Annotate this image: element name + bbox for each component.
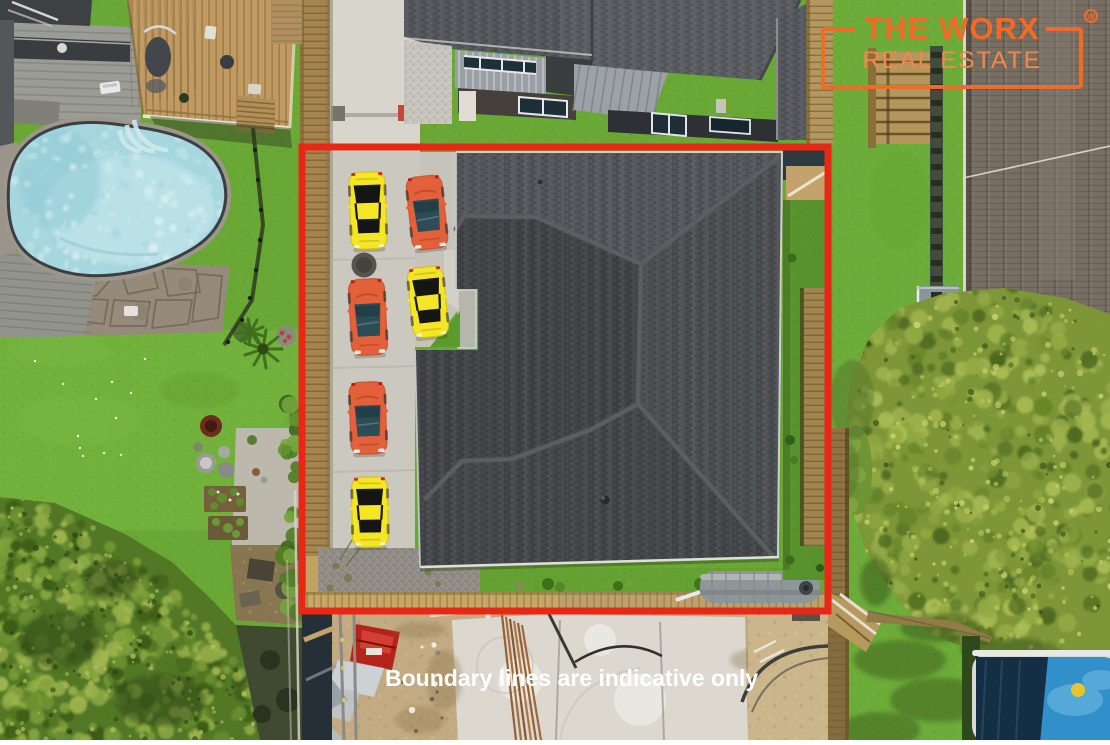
svg-text:REAL ESTATE: REAL ESTATE — [862, 47, 1041, 74]
svg-text:Boundary lines are indicative: Boundary lines are indicative only — [385, 665, 758, 691]
svg-text:W: W — [1087, 13, 1095, 22]
svg-text:THE WORX: THE WORX — [864, 11, 1039, 46]
